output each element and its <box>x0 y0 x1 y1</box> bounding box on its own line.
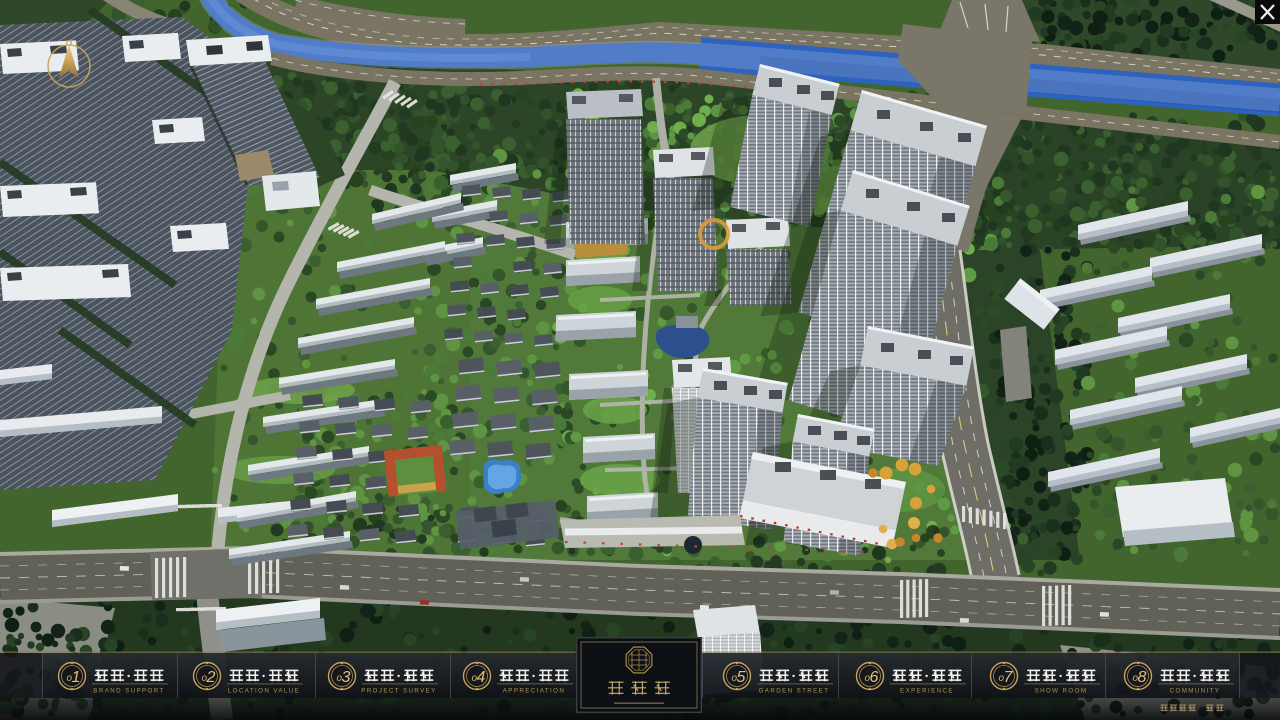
svg-text:BRAND SUPPORT: BRAND SUPPORT <box>93 688 164 695</box>
svg-text:7: 7 <box>1004 669 1014 686</box>
svg-text:1: 1 <box>72 669 81 686</box>
svg-text:GARDEN STREET: GARDEN STREET <box>759 688 830 695</box>
svg-text:LOCATION VALUE: LOCATION VALUE <box>228 688 300 695</box>
svg-text:8: 8 <box>1138 669 1147 686</box>
svg-text:6: 6 <box>870 669 879 686</box>
svg-text:SHOW ROOM: SHOW ROOM <box>1035 688 1088 695</box>
svg-text:4: 4 <box>477 669 486 686</box>
svg-text:3: 3 <box>342 669 351 686</box>
svg-text:2: 2 <box>206 669 216 686</box>
svg-text:5: 5 <box>737 669 746 686</box>
svg-text:PROJECT SURVEY: PROJECT SURVEY <box>361 688 436 695</box>
svg-text:EXPERIENCE: EXPERIENCE <box>900 688 954 695</box>
svg-text:COMMUNITY: COMMUNITY <box>1170 688 1221 695</box>
svg-text:APPRECIATION: APPRECIATION <box>503 688 565 695</box>
